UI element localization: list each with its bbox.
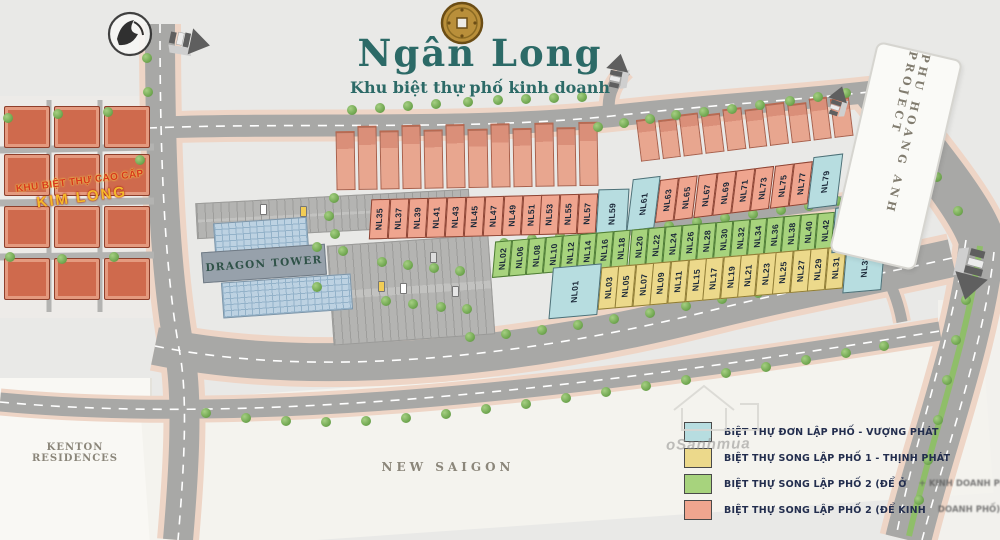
- lot-label: NL47: [487, 205, 498, 227]
- lot-label: NL63: [661, 188, 674, 212]
- tree-icon: [403, 101, 413, 111]
- lot-label: NL03: [602, 276, 614, 299]
- lot-label: NL41: [431, 206, 442, 228]
- tree-icon: [785, 96, 795, 106]
- lot-NL43: NL43: [445, 197, 466, 238]
- lot-label: NL45: [468, 205, 479, 227]
- lot-label: NL34: [751, 225, 763, 248]
- lot-label: NL51: [525, 204, 536, 226]
- legend-label: BIỆT THỰ SONG LẬP PHỐ 2 (ĐỂ KINH: [724, 505, 926, 516]
- tree-icon: [135, 155, 145, 165]
- legend-swatch: [684, 474, 712, 494]
- lot-NL39: NL39: [407, 198, 428, 239]
- lot-label: NL19: [724, 266, 736, 289]
- tree-icon: [755, 100, 765, 110]
- lot-label: NL75: [775, 174, 788, 198]
- lot-label: NL55: [563, 203, 574, 225]
- lot-label: NL07: [637, 273, 649, 296]
- tree-icon: [57, 254, 67, 264]
- tree-icon: [561, 393, 571, 403]
- lot-label: NL02: [496, 247, 508, 270]
- lot-NL37: NL37: [388, 198, 409, 239]
- tree-icon: [501, 329, 511, 339]
- lot-label: NL73: [756, 177, 769, 201]
- tree-icon: [321, 417, 331, 427]
- car-icon: [452, 286, 459, 297]
- lot-NL41: NL41: [426, 197, 447, 238]
- lot-label: NL69: [718, 181, 731, 205]
- tree-icon: [143, 87, 153, 97]
- car-icon: [300, 206, 307, 217]
- tree-icon: [324, 211, 334, 221]
- tree-icon: [761, 362, 771, 372]
- lot-NL01: NL01: [548, 263, 601, 319]
- tree-icon: [403, 260, 413, 270]
- tree-icon: [429, 263, 439, 273]
- lot-label: NL09: [654, 272, 666, 295]
- legend-item: BIỆT THỰ SONG LẬP PHỐ 2 (ĐỂ KINH DOANH P…: [684, 500, 1000, 520]
- lot-NL45: NL45: [463, 196, 484, 237]
- lot-label: NL36: [768, 224, 780, 247]
- lot-label: NL28: [700, 230, 712, 253]
- tree-icon: [401, 413, 411, 423]
- lot-label: NL38: [785, 222, 797, 245]
- tree-icon: [521, 399, 531, 409]
- lot-label: NL15: [689, 269, 701, 292]
- lot-label: NL22: [649, 234, 661, 257]
- lot-label: NL71: [737, 179, 750, 203]
- lot-label: NL77: [795, 172, 808, 196]
- tree-icon: [109, 252, 119, 262]
- tree-icon: [671, 110, 681, 120]
- tree-icon: [312, 282, 322, 292]
- lot-label: NL25: [777, 261, 789, 284]
- tree-icon: [801, 355, 811, 365]
- lot-label: NL57: [582, 203, 593, 225]
- lot-label: NL23: [759, 263, 771, 286]
- lot-label: NL24: [666, 233, 678, 256]
- watermark-house-icon: [660, 374, 772, 436]
- tree-icon: [609, 314, 619, 324]
- tree-icon: [281, 416, 291, 426]
- tree-icon: [381, 296, 391, 306]
- tree-icon: [593, 122, 603, 132]
- legend-label-obscured: + KINH DOANH PHỐ): [919, 479, 1000, 489]
- lot-label: NL05: [619, 275, 631, 298]
- lot-label: NL67: [699, 184, 712, 208]
- lot-label: NL59: [607, 202, 618, 224]
- legend-item: BIỆT THỰ SONG LẬP PHỐ 2 (ĐỂ Ở + KINH DOA…: [684, 474, 1000, 494]
- tree-icon: [436, 302, 446, 312]
- new-saigon-label: NEW SAIGON: [348, 460, 548, 474]
- lot-label: NL16: [598, 239, 610, 262]
- tree-icon: [3, 113, 13, 123]
- lot-label: NL31: [829, 256, 841, 279]
- tree-icon: [465, 332, 475, 342]
- lot-label: NL43: [450, 206, 461, 228]
- lot-label: NL06: [513, 246, 525, 269]
- car-icon: [400, 283, 407, 294]
- legend-label: BIỆT THỰ SONG LẬP PHỐ 2 (ĐỂ Ở: [724, 479, 907, 490]
- tree-icon: [953, 206, 963, 216]
- lot-label: NL01: [569, 280, 581, 303]
- lot-label: NL20: [632, 236, 644, 259]
- tree-icon: [441, 409, 451, 419]
- tree-icon: [201, 408, 211, 418]
- watermark-text: oSanhmua: [666, 435, 751, 453]
- lot-label: NL65: [680, 186, 693, 210]
- tree-icon: [377, 257, 387, 267]
- lot-label: NL32: [734, 227, 746, 250]
- lot-label: NL40: [802, 221, 814, 244]
- tree-icon: [463, 97, 473, 107]
- tree-icon: [813, 92, 823, 102]
- lot-NL49: NL49: [501, 195, 522, 236]
- tree-icon: [462, 304, 472, 314]
- lot-label: NL39: [412, 207, 423, 229]
- watermark-logo-icon: [106, 10, 154, 58]
- tree-icon: [431, 99, 441, 109]
- lot-label: NL42: [819, 219, 831, 242]
- car-icon: [378, 281, 385, 292]
- lot-NL47: NL47: [482, 196, 503, 237]
- lot-label: NL35: [374, 208, 385, 230]
- legend-label-obscured: DOANH PHỐ): [938, 505, 1000, 515]
- lot-label: NL21: [742, 264, 754, 287]
- tree-icon: [338, 246, 348, 256]
- master-plan-map: KENTON RESIDENCES: [0, 0, 1000, 540]
- lot-label: NL37: [393, 207, 404, 229]
- lot-label: NL26: [683, 231, 695, 254]
- lot-label: NL18: [615, 237, 627, 260]
- lot-label: NL12: [564, 242, 576, 265]
- tree-icon: [481, 404, 491, 414]
- lot-label: NL53: [544, 204, 555, 226]
- tree-icon: [408, 299, 418, 309]
- tree-icon: [641, 381, 651, 391]
- lot-label: NL61: [637, 192, 650, 216]
- tree-icon: [645, 308, 655, 318]
- car-icon: [430, 252, 437, 263]
- phu-hoang-anh-label: PHU HOANG ANH PROJECT: [859, 50, 932, 262]
- tree-icon: [645, 114, 655, 124]
- tree-icon: [573, 320, 583, 330]
- lot-label: NL17: [707, 267, 719, 290]
- lot-label: NL30: [717, 228, 729, 251]
- tree-icon: [329, 193, 339, 203]
- tree-icon: [455, 266, 465, 276]
- tree-icon: [5, 252, 15, 262]
- tree-icon: [879, 341, 889, 351]
- tree-icon: [537, 325, 547, 335]
- lot-label: NL11: [672, 270, 684, 293]
- tree-icon: [53, 109, 63, 119]
- tree-icon: [361, 416, 371, 426]
- lot-label: NL08: [530, 244, 542, 267]
- tree-icon: [312, 242, 322, 252]
- tree-icon: [103, 107, 113, 117]
- lot-NL35: NL35: [369, 199, 390, 240]
- lot-label: NL27: [794, 259, 806, 282]
- lot-label: NL79: [819, 169, 832, 193]
- legend-swatch: [684, 500, 712, 520]
- lot-label: NL29: [812, 258, 824, 281]
- lot-label: NL14: [581, 240, 593, 263]
- tree-icon: [619, 118, 629, 128]
- lot-label: NL10: [547, 243, 559, 266]
- tree-icon: [727, 104, 737, 114]
- tree-icon: [375, 103, 385, 113]
- lot-label: NL49: [506, 205, 517, 227]
- tree-icon: [841, 348, 851, 358]
- tree-icon: [951, 335, 961, 345]
- tree-icon: [330, 229, 340, 239]
- tree-icon: [241, 413, 251, 423]
- tree-icon: [942, 375, 952, 385]
- legend-label: BIỆT THỰ SONG LẬP PHỐ 1 - THỊNH PHÁT: [724, 453, 950, 464]
- car-icon: [260, 204, 267, 215]
- tree-icon: [699, 107, 709, 117]
- tree-icon: [681, 301, 691, 311]
- tree-icon: [601, 387, 611, 397]
- tree-icon: [347, 105, 357, 115]
